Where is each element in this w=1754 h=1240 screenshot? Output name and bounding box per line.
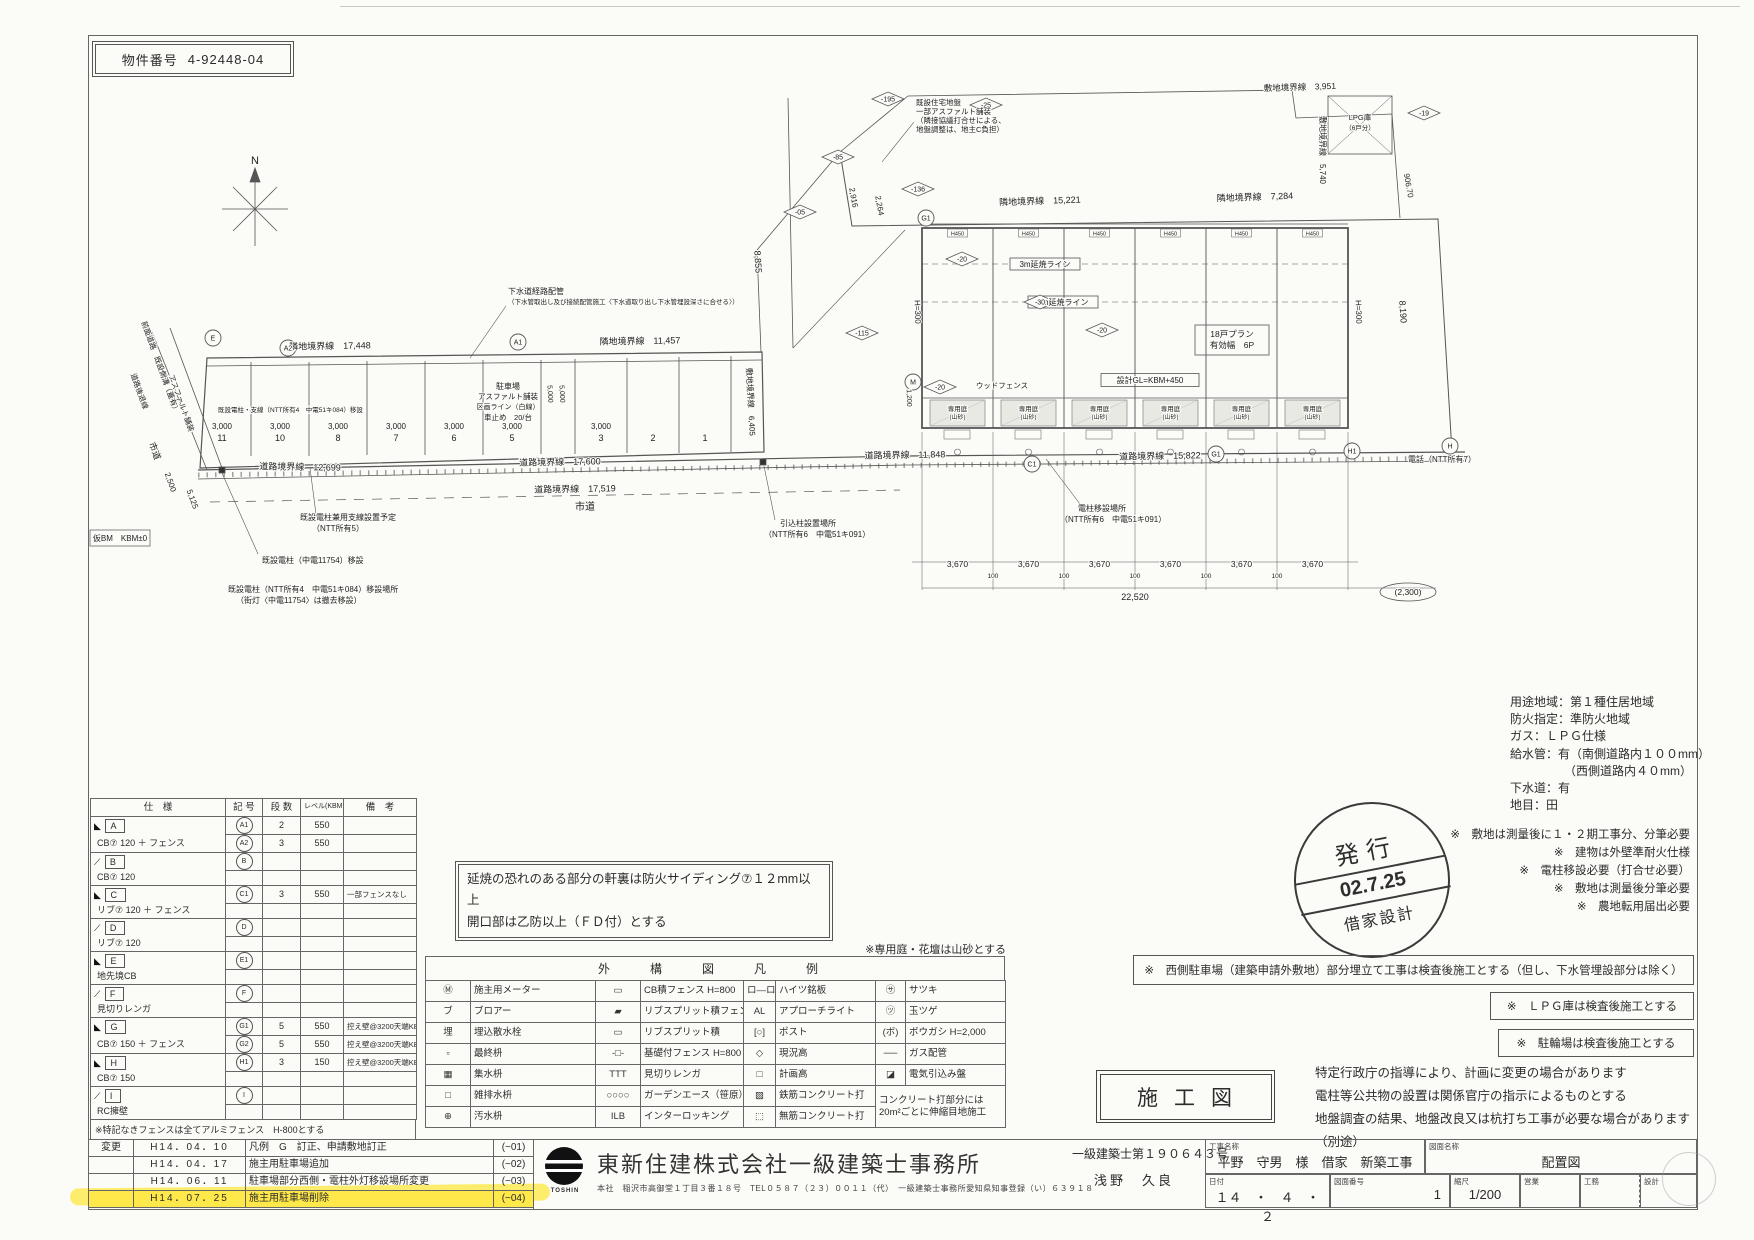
util-notes-line: 用途地域：第１種住居地域 bbox=[1510, 694, 1710, 711]
stall-number: 6 bbox=[451, 433, 456, 443]
spec-row: ◣ H H1 3150 控え壁@3200天端KBM-50 bbox=[91, 1054, 417, 1072]
plan-label-box-text: 5m延焼ライン bbox=[1037, 297, 1088, 307]
ref-circle-text: H bbox=[1447, 444, 1452, 451]
garden-label: (山砂) bbox=[1021, 413, 1037, 421]
spec-row: 地先境CB bbox=[91, 970, 417, 985]
plan-label-box-text: 有効幅 6P bbox=[1210, 340, 1255, 350]
plan-label: 電話（NTT所有7） bbox=[1408, 454, 1476, 464]
plan-label: 道路境界線 17,600 bbox=[519, 455, 601, 467]
elevation-value: -20 bbox=[957, 257, 967, 264]
boxed-note-lpg: ※ ＬＰＧ庫は検査後施工とする bbox=[1490, 992, 1694, 1020]
revision-row: H14．04．17施主用駐車場追加 (−02) bbox=[89, 1157, 534, 1174]
plan-label: 敷地境界線 6,405 bbox=[744, 368, 758, 437]
ref-circle-text: H1 bbox=[1348, 449, 1357, 456]
ref-circle-text: G1 bbox=[921, 216, 930, 223]
titleblock-sales: 営業 bbox=[1520, 1174, 1580, 1208]
plan-label: 隣地境界線 17,448 bbox=[289, 339, 371, 351]
receipt-stamp-icon bbox=[1662, 1152, 1716, 1206]
spec-row: リブ⑦ 120 ＋ フェンス bbox=[91, 904, 417, 919]
titleblock-scale: 縮尺 1/200 bbox=[1450, 1174, 1520, 1208]
plan-label: 道路境界線 17,519 bbox=[534, 482, 616, 494]
plan-label: （隣接協議打合せによる、 bbox=[916, 115, 1006, 125]
plan-label: ウッドフェンス bbox=[976, 381, 1028, 390]
stall-dim: 3,000 bbox=[444, 422, 465, 431]
scan-page-edge bbox=[340, 6, 1740, 7]
elevation-value: -136 bbox=[911, 187, 925, 194]
plan-label: N bbox=[251, 155, 259, 167]
elevation-value: -115 bbox=[855, 331, 869, 338]
plan-label: 引込柱設置場所 bbox=[780, 518, 836, 528]
plan-label: 下水道経路配管 bbox=[508, 286, 564, 296]
plan-label: 仮BM KBM±0 bbox=[93, 533, 148, 543]
titleblock-date-label: 日付 bbox=[1209, 1176, 1224, 1187]
elevation-value: -25 bbox=[981, 103, 991, 110]
fire-protection-note: 延焼の恐れのある部分の軒裏は防火サイディング⑦１２mm以上 開口部は乙防以上（Ｆ… bbox=[455, 861, 833, 941]
stall-number: 5 bbox=[509, 433, 514, 443]
spec-row: ⟋ F F bbox=[91, 985, 417, 1003]
util-notes-line: ガス：ＬＰＧ仕様 bbox=[1510, 728, 1710, 745]
bay-dim: 3,670 bbox=[947, 559, 969, 569]
garden-label: (山砂) bbox=[950, 413, 966, 421]
elevation-value: -20 bbox=[1097, 328, 1107, 335]
legend-row: Ⓜ施主用メーター▭CB積フェンス H=800 ロ—ロハイツ銘板㋚サツキ bbox=[426, 981, 1006, 1002]
exterior-legend-table: 外 構 図 凡 例 Ⓜ施主用メーター▭CB積フェンス H=800 ロ—ロハイツ銘… bbox=[425, 956, 1005, 1128]
titleblock-date: 日付 １４ ・ ４ ・ ２ bbox=[1205, 1174, 1330, 1208]
elevation-value: -85 bbox=[833, 155, 843, 162]
titleblock-scale-value: 1/200 bbox=[1451, 1187, 1519, 1202]
plan-label: 車止め 20/台 bbox=[484, 412, 532, 422]
stall-number: 7 bbox=[393, 433, 398, 443]
bay-dim: 3,670 bbox=[1018, 559, 1040, 569]
plan-label: 2,500 bbox=[163, 471, 178, 493]
spec-row: ◣ E E1 bbox=[91, 952, 417, 970]
plan-label: （街灯〈中電11754〉は撤去移設） bbox=[236, 595, 362, 605]
spec-row: ⟋ B B bbox=[91, 853, 417, 871]
legend-row: □雑排水枡○○○○ガーデンエース（笹原） ▨鉄筋コンクリート打コンクリート打部分… bbox=[426, 1086, 1006, 1107]
spec-row: ⟋ I I bbox=[91, 1087, 417, 1105]
stall-number: 2 bbox=[650, 433, 655, 443]
boxed-note-bicycle: ※ 駐輪場は検査後施工とする bbox=[1498, 1029, 1694, 1057]
architect-name: 浅野 久良 bbox=[1094, 1170, 1174, 1189]
bay-gap-dim: 100 bbox=[988, 573, 999, 580]
garden-label: (山砂) bbox=[1234, 413, 1250, 421]
titleblock-date-value: １４ ・ ４ ・ ２ bbox=[1206, 1187, 1329, 1225]
garden-label: 専用庭 bbox=[1090, 404, 1110, 413]
company-name: 東新住建株式会社一級建築士事務所 bbox=[597, 1147, 981, 1179]
plan-label: 1,200 bbox=[905, 389, 913, 407]
h450-label: H450 bbox=[951, 232, 964, 238]
plan-label: 道路境界線 11,848 bbox=[864, 448, 945, 460]
plan-label: 道路後退線 bbox=[129, 372, 151, 411]
garden-label: 専用庭 bbox=[1019, 404, 1039, 413]
plan-label-box-text: 設計GL=KBM+450 bbox=[1117, 375, 1184, 385]
existing-pole-mark bbox=[219, 467, 225, 473]
company-logo-text: TOSHIN bbox=[541, 1188, 589, 1194]
titleblock-scale-label: 縮尺 bbox=[1454, 1176, 1469, 1187]
legend-row: ▦集水枡ΤΤΤ見切りレンガ □計画高◪電気引込み盤 bbox=[426, 1065, 1006, 1086]
stall-dim: 3,000 bbox=[591, 422, 612, 431]
titleblock-number-label: 図面番号 bbox=[1334, 1176, 1364, 1187]
plan-label: 8,190 bbox=[1397, 300, 1409, 323]
stall-dim: 3,000 bbox=[212, 422, 233, 431]
plan-label: （NTT所有5） bbox=[312, 523, 364, 533]
garden-label: (山砂) bbox=[1163, 413, 1179, 421]
spec-row: 見切りレンガ bbox=[91, 1003, 417, 1018]
h450-label: H450 bbox=[1093, 232, 1106, 238]
legend-title: 外 構 図 凡 例 bbox=[425, 956, 1005, 980]
stall-number: 11 bbox=[217, 433, 226, 443]
h450-label: H450 bbox=[1022, 232, 1035, 238]
stall-number: 10 bbox=[275, 433, 285, 443]
plan-label: LPG庫 bbox=[1349, 112, 1372, 122]
plan-label: 隣地境界線 15,221 bbox=[999, 194, 1081, 208]
plan-label: 既設住宅地盤 bbox=[916, 97, 961, 107]
plan-label: 地盤調整は、地主C負担） bbox=[916, 124, 1004, 134]
disclaimer-line: 電柱等公共物の設置は関係官庁の指示によるものとする bbox=[1315, 1085, 1710, 1108]
spec-row: RC擁壁 bbox=[91, 1105, 417, 1120]
spec-row: CB⑦ 120 ＋ フェンス A2 3550 bbox=[91, 835, 417, 853]
garden-label: 専用庭 bbox=[1161, 404, 1181, 413]
util-notes-line: 地目：田 bbox=[1510, 797, 1710, 814]
stall-number: 3 bbox=[598, 433, 603, 443]
bay-dim: 3,670 bbox=[1302, 559, 1324, 569]
util-notes-line: （西側道路内４０mm） bbox=[1510, 763, 1710, 780]
plan-label: 隣地境界線 11,457 bbox=[599, 334, 680, 346]
ref-circle-text: A2 bbox=[284, 346, 293, 353]
elevation-value: -30 bbox=[1035, 300, 1045, 307]
elevation-value: -20 bbox=[935, 385, 945, 392]
elevation-value: -19 bbox=[1419, 111, 1429, 118]
util-notes-line: 給水管：有（南側道路内１００mm） bbox=[1510, 746, 1710, 763]
spec-row: ◣ C C1 3550 一部フェンスなし bbox=[91, 886, 417, 904]
fire-note-line2: 開口部は乙防以上（ＦＤ付）とする bbox=[467, 912, 821, 933]
bay-gap-dim: 100 bbox=[1059, 573, 1070, 580]
spec-row: CB⑦ 150 bbox=[91, 1072, 417, 1087]
spec-footnote: ※特記なきフェンスは全てアルミフェンス H-800とする bbox=[90, 1120, 416, 1140]
revision-row: H14．06．11駐車場部分西側・電柱外灯移設場所変更 (−03) bbox=[89, 1174, 534, 1191]
plan-label: 区画ライン（白線） bbox=[477, 402, 540, 411]
utility-notes: 用途地域：第１種住居地域防火指定：準防火地域ガス：ＬＰＧ仕様給水管：有（南側道路… bbox=[1510, 694, 1710, 814]
plan-label: 駐車場 bbox=[496, 381, 520, 391]
site-plan: N隣地境界線 17,448隣地境界線 11,457隣地境界線 15,221隣地境… bbox=[88, 35, 1698, 625]
company-address: 本社 稲沢市高御堂１丁目３番１８号 TEL０５８７（２３）００１１（代） 一級建… bbox=[597, 1183, 1094, 1194]
titleblock-design-label: 設計 bbox=[1644, 1176, 1659, 1187]
titleblock-drawing-label: 図面名称 bbox=[1429, 1141, 1459, 1152]
spec-row: ◣ G G1 5550 控え壁@3200天端KBM+350 bbox=[91, 1018, 417, 1036]
dim-oval-text: (2,300) bbox=[1395, 587, 1422, 597]
ref-circle-text: M bbox=[910, 380, 916, 387]
spec-col-level: レベル(KBM+) bbox=[301, 799, 344, 817]
plan-label-box-text: 18戸プラン bbox=[1210, 329, 1253, 339]
plan-label: 8,855 bbox=[752, 250, 763, 273]
titleblock-project-label: 工事名称 bbox=[1209, 1141, 1239, 1152]
company-logo-icon bbox=[545, 1147, 583, 1185]
stall-number: 8 bbox=[335, 433, 340, 443]
stall-number: 1 bbox=[702, 433, 707, 443]
plan-label: 906.70 bbox=[1402, 173, 1415, 199]
spec-col-note: 備 考 bbox=[344, 799, 417, 817]
plan-label: 22,520 bbox=[1121, 592, 1149, 602]
plan-label: 既設電柱（NTT所有4 中電51キ084）移設場所 bbox=[228, 584, 398, 594]
plan-label: 隣地境界線 7,284 bbox=[1216, 190, 1293, 204]
legend-row: ブブロアー▰リブスプリット積フェンス H=800 ALアプローチライト㋡玉ツゲ bbox=[426, 1002, 1006, 1023]
titleblock-number: 図面番号 1 bbox=[1330, 1174, 1450, 1208]
ref-circle-text: A1 bbox=[514, 340, 523, 347]
plan-label: 電柱移設場所 bbox=[1078, 503, 1126, 513]
disclaimer-line: 特定行政庁の指導により、計画に変更の場合があります bbox=[1315, 1062, 1710, 1085]
util-notes-line: 下水道：有 bbox=[1510, 780, 1710, 797]
plan-label: H=300 bbox=[1354, 300, 1364, 325]
ref-circle-text: G1 bbox=[1211, 452, 1220, 459]
plan-label: 2,264 bbox=[873, 195, 885, 217]
plan-label: 5,000 bbox=[558, 385, 566, 403]
titleblock-number-value: 1 bbox=[1331, 1187, 1449, 1202]
bay-dim: 3,670 bbox=[1160, 559, 1182, 569]
stall-dim: 3,000 bbox=[502, 422, 523, 431]
legend-concrete-note: コンクリート打部分には20m²ごとに伸縮目地施工 bbox=[876, 1086, 1006, 1128]
bay-gap-dim: 100 bbox=[1201, 573, 1212, 580]
stall-dim: 3,000 bbox=[270, 422, 291, 431]
spec-row: ◣ A A1 2550 bbox=[91, 817, 417, 835]
plan-label: H=300 bbox=[913, 300, 923, 325]
plan-label: 敷地境界線 5,740 bbox=[1318, 116, 1328, 185]
spec-col-steps: 段 数 bbox=[263, 799, 301, 817]
legend-row: 埋埋込散水栓▭リブスプリット積 [○]ポスト(ボ)ボウガシ H=2,000 bbox=[426, 1023, 1006, 1044]
plan-label: 市道 bbox=[147, 440, 163, 461]
garden-label: (山砂) bbox=[1305, 413, 1321, 421]
bay-gap-dim: 100 bbox=[1272, 573, 1283, 580]
h450-label: H450 bbox=[1235, 232, 1248, 238]
bay-gap-dim: 100 bbox=[1130, 573, 1141, 580]
elevation-value: -05 bbox=[795, 210, 805, 217]
plan-label-box-text: 3m延焼ライン bbox=[1019, 259, 1070, 269]
plan-label: 既設電柱兼用支線設置予定 bbox=[300, 512, 396, 522]
garden-label: 専用庭 bbox=[948, 404, 968, 413]
garden-label: 専用庭 bbox=[1303, 404, 1323, 413]
plan-label: 道路境界線 15,822 bbox=[1119, 449, 1201, 461]
revision-table: 変更 H14．04．10凡例 G 訂正、申請敷地訂正 (−01) H14．04．… bbox=[88, 1139, 533, 1208]
garden-sand-note: ※専用庭・花壇は山砂とする bbox=[760, 941, 1006, 957]
spec-row: リブ⑦ 120 bbox=[91, 937, 417, 952]
plan-label: （NTT所有6 中電51キ091） bbox=[1060, 514, 1166, 524]
plan-label: （下水管取出し及び接続配管施工〈下水道取り出し下水管埋設深さに合せる〉） bbox=[508, 297, 739, 306]
plan-label: 既設電柱・支線（NTT所有4 中電51キ084）移設 bbox=[218, 405, 363, 414]
stall-dim: 3,000 bbox=[386, 422, 407, 431]
legend-row: ▫最終枡‐□‐基礎付フェンス H=800 ◇現況高──ガス配管 bbox=[426, 1044, 1006, 1065]
bay-dim: 3,670 bbox=[1231, 559, 1253, 569]
existing-pole-mark bbox=[760, 459, 766, 465]
plan-label: （NTT所有6 中電51キ091） bbox=[764, 529, 870, 539]
plan-label: （6戸分） bbox=[1345, 123, 1375, 132]
titleblock-works: 工務 bbox=[1580, 1174, 1640, 1208]
fire-note-line1: 延焼の恐れのある部分の軒裏は防火サイディング⑦１２mm以上 bbox=[467, 869, 821, 912]
h450-label: H450 bbox=[1164, 232, 1177, 238]
titleblock-drawing: 図面名称 配置図 bbox=[1425, 1139, 1697, 1174]
spec-col-spec: 仕 様 bbox=[91, 799, 226, 817]
stall-dim: 3,000 bbox=[328, 422, 349, 431]
plan-label: 道路境界線 12,699 bbox=[259, 460, 341, 472]
plan-label: 5,125 bbox=[185, 488, 200, 510]
spec-row: ⟋ D D bbox=[91, 919, 417, 937]
boxed-note-west-parking: ※ 西側駐車場（建築申請外敷地）部分埋立て工事は検査後施工とする（但し、下水管埋… bbox=[1133, 955, 1694, 985]
drawing-sheet: 物件番号 4-92448-04 bbox=[0, 0, 1754, 1240]
titleblock-sales-label: 営業 bbox=[1524, 1176, 1539, 1187]
revision-row: H14．07．25施主用駐車場削除 (−04) bbox=[89, 1191, 534, 1208]
revision-row: 変更 H14．04．10凡例 G 訂正、申請敷地訂正 (−01) bbox=[89, 1140, 534, 1157]
ref-circle-text: C1 bbox=[1028, 462, 1037, 469]
titleblock-project-value: 平野 守男 様 借家 新築工事 bbox=[1206, 1152, 1424, 1171]
plan-label: 5,000 bbox=[546, 385, 554, 403]
ref-circle-text: E bbox=[211, 336, 216, 343]
titleblock-drawing-value: 配置図 bbox=[1426, 1152, 1696, 1171]
plan-label: 市道 bbox=[575, 500, 595, 513]
spec-row: CB⑦ 150 ＋ フェンス G2 5550 控え壁@3200天端KBM+350… bbox=[91, 1036, 417, 1054]
fence-spec-table: 仕 様 記 号 段 数 レベル(KBM+) 備 考 ◣ A A1 2550 CB… bbox=[90, 798, 416, 1140]
garden-label: 専用庭 bbox=[1232, 404, 1252, 413]
elevation-value: -195 bbox=[881, 97, 895, 104]
plan-label: 既設電柱（中電11754）移設 bbox=[262, 555, 364, 565]
plan-label: アスファルト舗装 bbox=[478, 391, 538, 401]
util-notes-line: 防火指定：準防火地域 bbox=[1510, 711, 1710, 728]
garden-label: (山砂) bbox=[1092, 413, 1108, 421]
bay-dim: 3,670 bbox=[1089, 559, 1111, 569]
h450-label: H450 bbox=[1306, 232, 1319, 238]
titleblock-project: 工事名称 平野 守男 様 借家 新築工事 bbox=[1205, 1139, 1425, 1174]
north-arrow-icon bbox=[250, 168, 260, 182]
plan-label: 敷地境界線 3,951 bbox=[1264, 81, 1337, 94]
titleblock-works-label: 工務 bbox=[1584, 1176, 1599, 1187]
spec-col-symbol: 記 号 bbox=[226, 799, 263, 817]
construction-drawing-label: 施工図 bbox=[1096, 1070, 1275, 1123]
spec-row: CB⑦ 120 bbox=[91, 871, 417, 886]
